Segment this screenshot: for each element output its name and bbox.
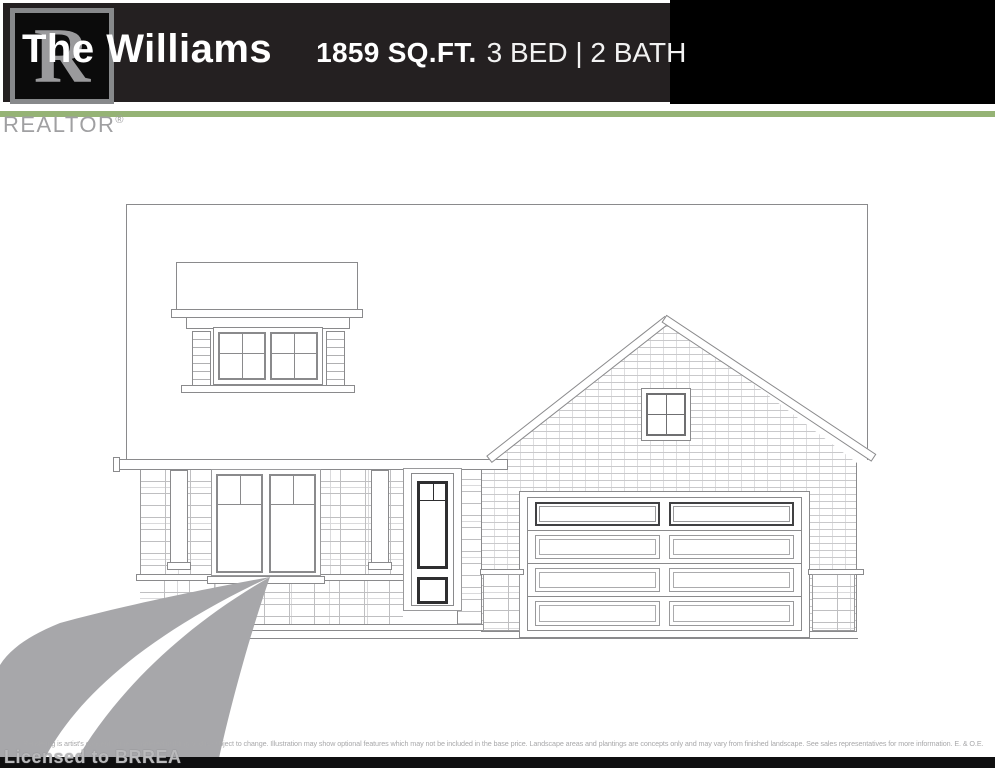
second-floor-window [213,327,323,385]
stone-wainscot-right [812,574,855,631]
garage-door [527,497,802,631]
shutter-right [326,331,345,388]
garage-door-panel [669,535,794,559]
pilaster-cap [368,562,392,570]
garage-door-row [528,531,801,564]
garage-door-row [528,597,801,630]
awning-roof [176,262,358,310]
porch-pilaster-left [170,470,188,570]
eave-band-cap [113,457,120,472]
garage-door-panel [535,601,660,626]
transom-bar [271,504,314,505]
transom-mullion [240,476,241,504]
realtor-wordmark: REALTOR® [3,112,124,138]
registered-trademark-icon: ® [115,114,123,126]
transom-mullion [293,476,294,504]
header-text: The Williams 1859 SQ.FT. 3 BED | 2 BATH [22,27,686,72]
garage-door-panel [535,535,660,559]
garage-door-panel [535,568,660,592]
transom-bar [420,500,445,501]
garage-door-window [535,502,660,526]
main-floor-window [211,469,321,576]
garage-door-window [669,502,794,526]
window-pane [216,474,263,573]
bed-bath-label: 3 BED | 2 BATH [487,37,687,69]
shutter-left [192,331,211,388]
transom-bar [218,504,261,505]
front-door-glass [417,481,448,569]
licensed-watermark: Licensed to BRREA [4,747,182,768]
stone-wainscot-left [483,574,520,631]
plan-flyer: The Williams 1859 SQ.FT. 3 BED | 2 BATH … [0,0,995,768]
window-pane [270,332,318,380]
header-bar-right [670,0,995,104]
garage-door-row [528,498,801,531]
window-pane [218,332,266,380]
window-pane [269,474,316,573]
transom-mullion [433,484,434,500]
gable-window [641,388,691,441]
front-door-panel [417,577,448,604]
garage-door-opening [519,491,810,638]
green-accent-rule [0,111,995,117]
page-title: The Williams [22,27,272,72]
sqft-label: 1859 SQ.FT. [316,37,477,69]
garage-door-panel [669,601,794,626]
garage-door-panel [669,568,794,592]
window-sill [181,385,355,393]
leaf-swoosh-watermark [0,568,300,768]
window-pane [646,393,686,436]
garage-door-row [528,564,801,597]
porch-pilaster-right [371,470,389,570]
